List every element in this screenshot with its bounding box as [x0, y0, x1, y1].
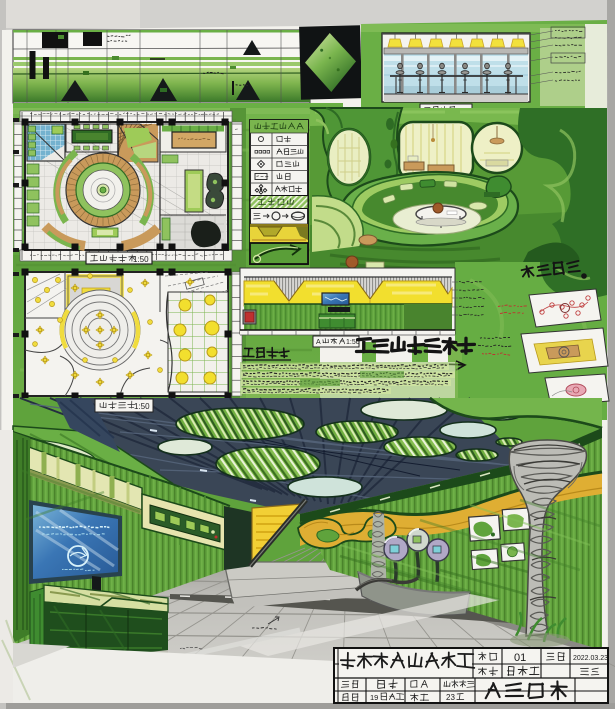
svg-text:A: A	[316, 339, 321, 346]
svg-text:19: 19	[370, 693, 378, 702]
svg-text:01: 01	[514, 652, 526, 664]
svg-text:23: 23	[446, 693, 455, 702]
svg-text:2022.03.23: 2022.03.23	[573, 655, 608, 662]
svg-text:1:50: 1:50	[133, 255, 149, 264]
svg-text:1:50: 1:50	[134, 402, 150, 411]
